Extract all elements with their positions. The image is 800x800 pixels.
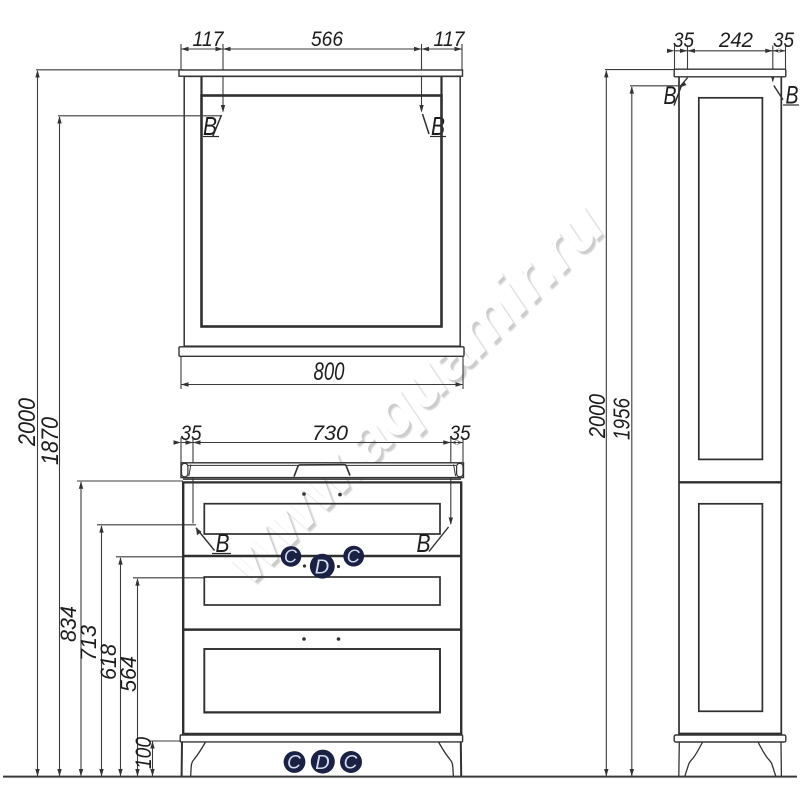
svg-text:564: 564 xyxy=(116,656,141,692)
svg-text:C: C xyxy=(287,753,301,774)
svg-text:C: C xyxy=(284,547,298,567)
svg-text:35: 35 xyxy=(773,29,794,52)
svg-text:2000: 2000 xyxy=(584,394,610,439)
svg-text:1870: 1870 xyxy=(37,416,64,465)
svg-text:1956: 1956 xyxy=(609,398,635,440)
svg-text:117: 117 xyxy=(434,28,466,51)
svg-text:C: C xyxy=(344,753,358,774)
svg-text:117: 117 xyxy=(193,28,225,51)
svg-text:730: 730 xyxy=(312,422,348,445)
svg-text:100: 100 xyxy=(131,736,156,769)
svg-text:D: D xyxy=(315,752,329,774)
svg-text:C: C xyxy=(347,547,361,567)
svg-text:35: 35 xyxy=(673,29,694,52)
svg-text:35: 35 xyxy=(181,422,202,445)
svg-text:B: B xyxy=(417,528,431,558)
svg-text:800: 800 xyxy=(314,358,345,386)
svg-text:242: 242 xyxy=(718,29,753,52)
svg-text:35: 35 xyxy=(450,422,471,445)
svg-text:566: 566 xyxy=(311,28,343,51)
svg-text:D: D xyxy=(315,557,329,579)
